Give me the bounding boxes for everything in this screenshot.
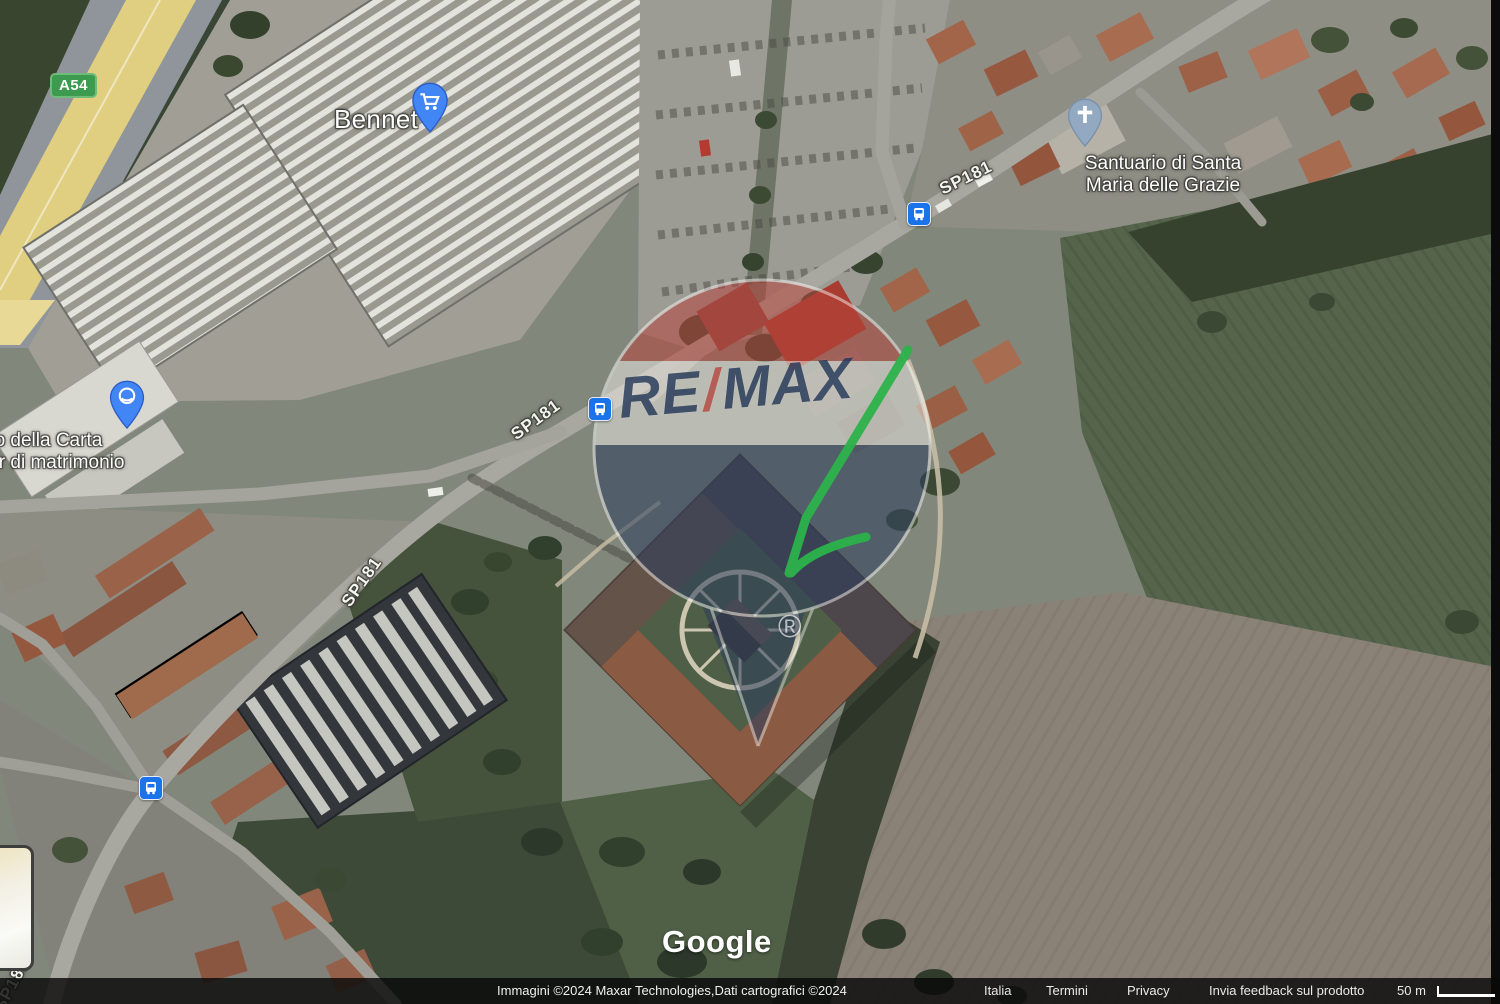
map-inset-thumbnail[interactable] xyxy=(0,845,34,971)
scale-label[interactable]: 50 m xyxy=(1397,983,1426,998)
attribution-country: Italia xyxy=(984,983,1011,998)
map-viewport[interactable]: RE/MAX ® A54 Bennet Santuario di Santa M… xyxy=(0,0,1500,1004)
bus-stop-icon[interactable] xyxy=(139,776,163,800)
scale-bar[interactable] xyxy=(1437,986,1495,997)
bennet-store-pin[interactable] xyxy=(410,82,450,134)
carta-line2: nir di matrimonio xyxy=(0,452,164,474)
feedback-link[interactable]: Invia feedback sul prodotto xyxy=(1209,983,1364,998)
carta-store-pin[interactable] xyxy=(108,380,146,430)
santuario-church-pin[interactable] xyxy=(1066,98,1104,148)
attribution-bar: Immagini ©2024 Maxar Technologies,Dati c… xyxy=(0,978,1500,1004)
poi-label-carta[interactable]: do della Carta nir di matrimonio xyxy=(0,430,164,474)
right-edge-bar xyxy=(1491,0,1500,1004)
poi-label-santuario[interactable]: Santuario di Santa Maria delle Grazie xyxy=(1063,153,1263,197)
google-logo[interactable]: Google xyxy=(662,924,772,960)
highway-shield-a54: A54 xyxy=(50,73,97,98)
remax-watermark-balloon xyxy=(540,268,990,788)
imagery-credit: Immagini ©2024 Maxar Technologies,Dati c… xyxy=(497,983,847,998)
carta-line1: do della Carta xyxy=(0,430,164,452)
registered-trademark-icon: ® xyxy=(778,608,802,645)
poi-label-bennet[interactable]: Bennet xyxy=(334,104,418,135)
bus-stop-icon[interactable] xyxy=(907,202,931,226)
bus-stop-icon[interactable] xyxy=(588,397,612,421)
remax-re: RE xyxy=(616,359,704,431)
privacy-link[interactable]: Privacy xyxy=(1127,983,1170,998)
remax-max: MAX xyxy=(719,346,856,422)
santuario-line2: Maria delle Grazie xyxy=(1063,175,1263,197)
santuario-line1: Santuario di Santa xyxy=(1063,153,1263,175)
terms-link[interactable]: Termini xyxy=(1046,983,1088,998)
